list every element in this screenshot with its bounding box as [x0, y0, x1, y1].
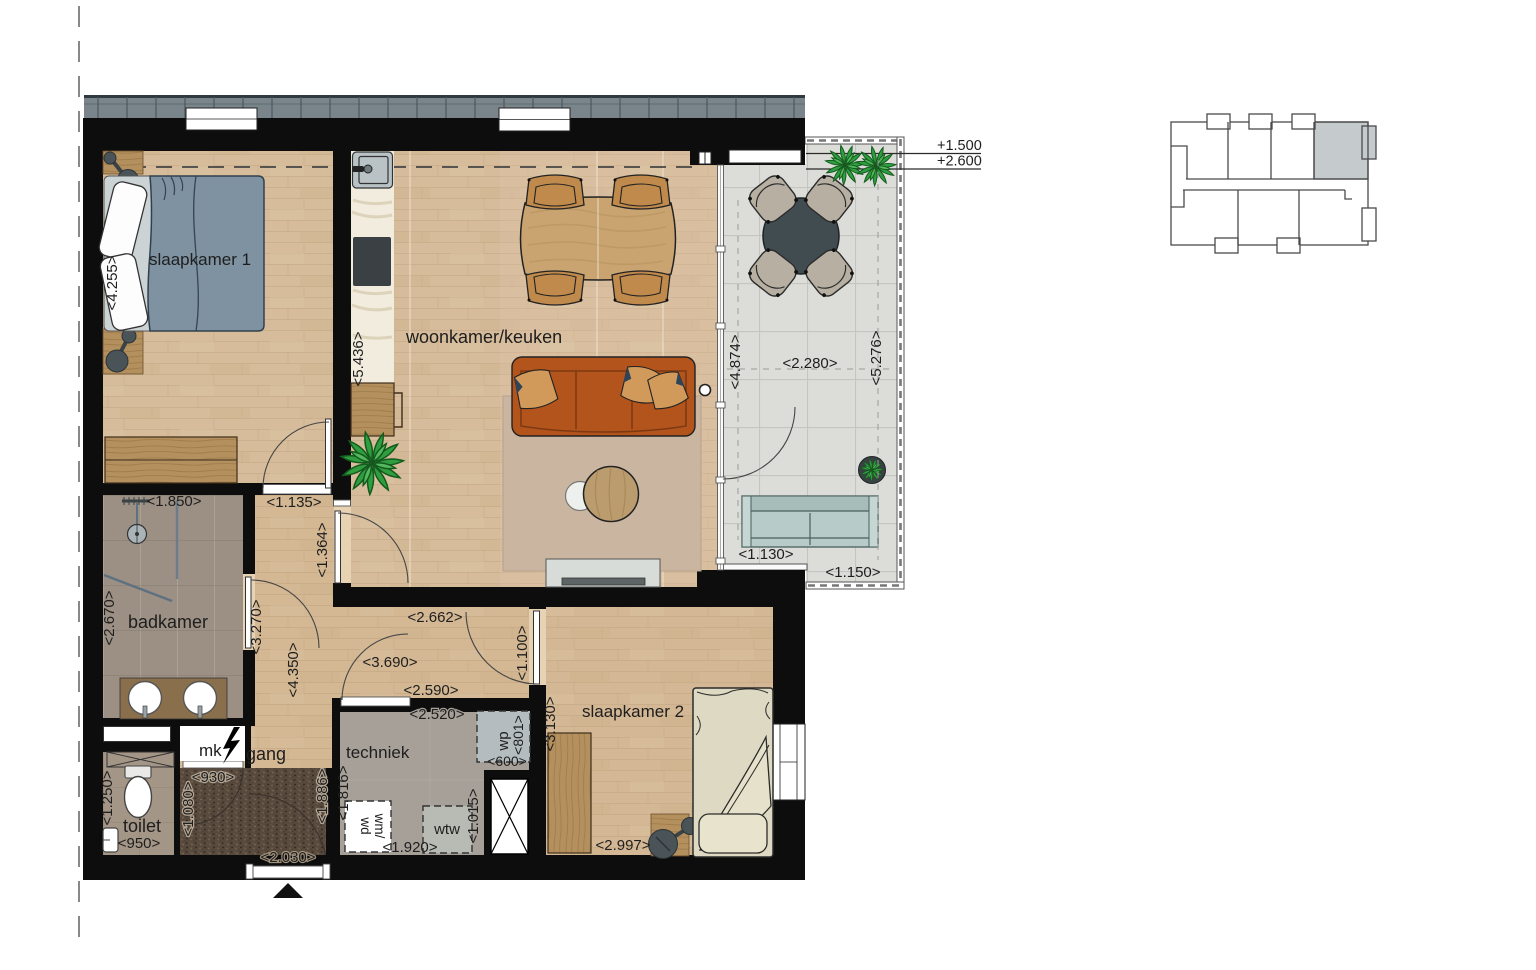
svg-text:<1.015>: <1.015> [465, 788, 482, 843]
svg-text:<801>: <801> [510, 715, 526, 755]
svg-text:<1.150>: <1.150> [825, 564, 880, 581]
svg-text:<5.436>: <5.436> [350, 331, 367, 386]
svg-text:<930>: <930> [192, 769, 235, 786]
svg-text:toilet: toilet [123, 816, 161, 836]
svg-text:<1.250>: <1.250> [99, 770, 116, 825]
svg-text:<5.276>: <5.276> [868, 330, 885, 385]
svg-text:<2.662>: <2.662> [407, 609, 462, 626]
svg-text:gang: gang [246, 744, 286, 764]
svg-text:woonkamer/keuken: woonkamer/keuken [405, 327, 562, 347]
svg-text:<1.850>: <1.850> [146, 493, 201, 510]
svg-text:<4.874>: <4.874> [727, 334, 744, 389]
svg-text:<4.255>: <4.255> [104, 255, 121, 310]
svg-text:slaapkamer 2: slaapkamer 2 [582, 702, 684, 721]
svg-text:<600>: <600> [487, 753, 527, 769]
svg-text:<3.130>: <3.130> [542, 696, 559, 751]
svg-text:<1.130>: <1.130> [738, 546, 793, 563]
svg-text:<1.886>: <1.886> [314, 768, 331, 823]
svg-text:badkamer: badkamer [128, 612, 208, 632]
svg-text:<2.280>: <2.280> [782, 355, 837, 372]
svg-text:wm/: wm/ [372, 813, 387, 839]
svg-text:slaapkamer 1: slaapkamer 1 [149, 250, 251, 269]
svg-text:+1.500: +1.500 [937, 138, 982, 154]
svg-text:<950>: <950> [118, 835, 161, 852]
svg-text:<1.080>: <1.080> [180, 781, 197, 836]
svg-text:<3.270>: <3.270> [248, 599, 265, 654]
svg-text:+2.600: +2.600 [937, 154, 982, 170]
svg-text:wd: wd [358, 816, 373, 834]
svg-text:<1.816>: <1.816> [335, 765, 352, 820]
svg-text:<2.997>: <2.997> [595, 837, 650, 854]
svg-text:<3.690>: <3.690> [362, 654, 417, 671]
svg-text:<1.135>: <1.135> [266, 494, 321, 511]
svg-text:<2.030>: <2.030> [260, 849, 315, 866]
svg-text:<1.100>: <1.100> [514, 625, 531, 680]
svg-text:<1.920>: <1.920> [382, 839, 437, 856]
svg-text:techniek: techniek [346, 743, 410, 762]
svg-text:wtw: wtw [433, 821, 460, 838]
svg-text:<2.590>: <2.590> [403, 682, 458, 699]
svg-text:mk: mk [199, 741, 222, 760]
svg-text:<4.350>: <4.350> [285, 642, 302, 697]
svg-text:<2.520>: <2.520> [409, 706, 464, 723]
svg-text:<2.670>: <2.670> [101, 590, 118, 645]
svg-text:<1.364>: <1.364> [314, 522, 331, 577]
